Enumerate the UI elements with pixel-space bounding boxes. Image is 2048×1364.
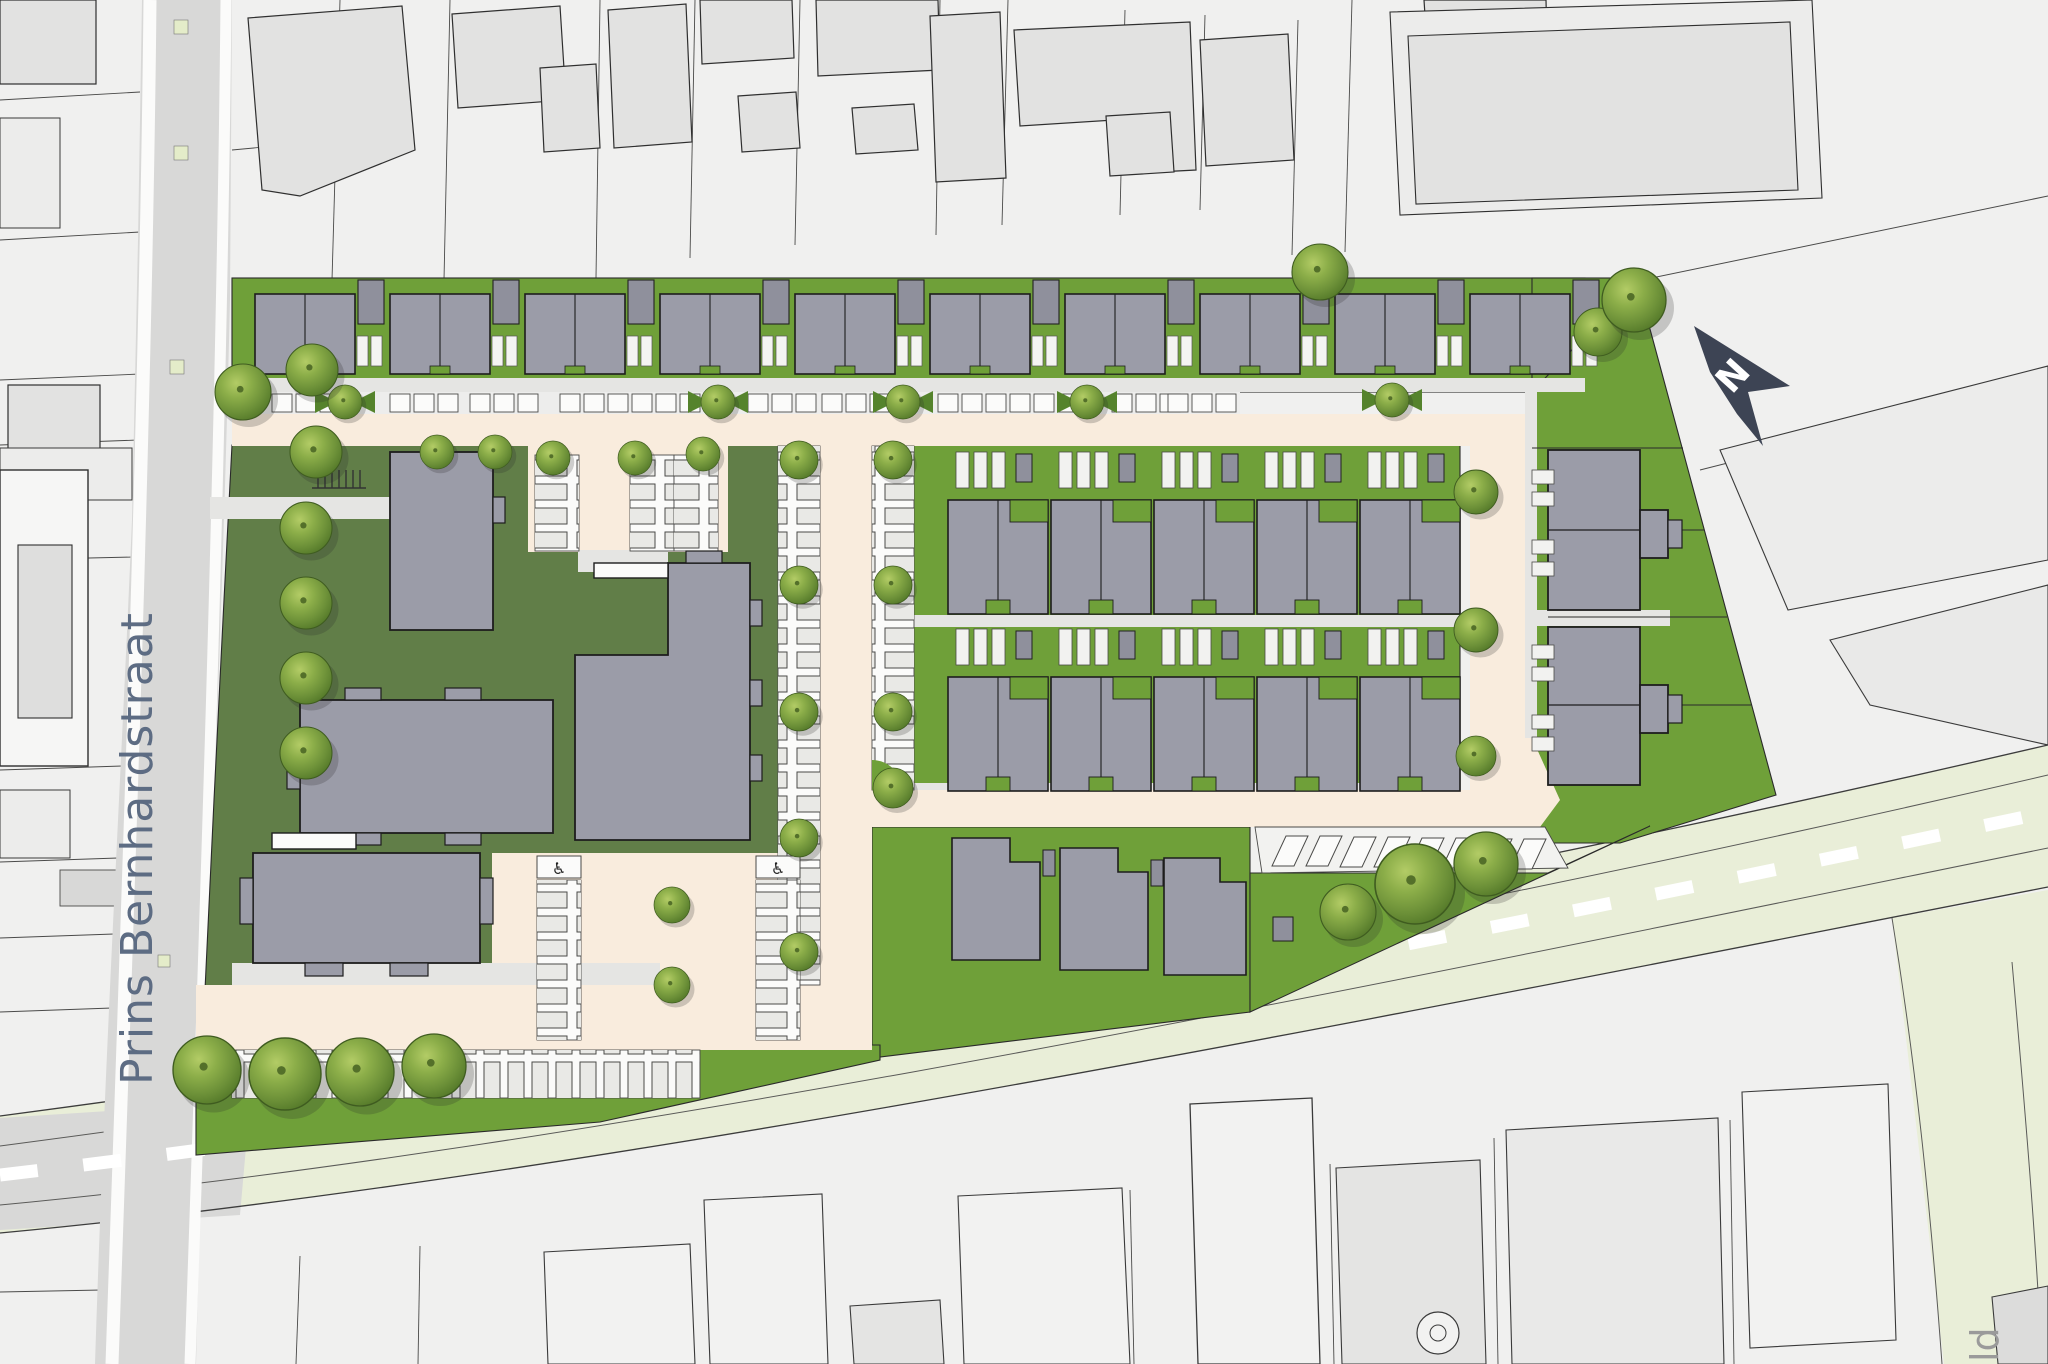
lower-east-street bbox=[872, 790, 1540, 827]
street-label: Prins Bernhardstraat bbox=[112, 612, 163, 1085]
apartment-block bbox=[300, 700, 553, 833]
canopy bbox=[594, 563, 668, 578]
middle-street bbox=[820, 446, 872, 1050]
apartment-block bbox=[253, 853, 480, 963]
masterplan-map: ♿ ♿ bbox=[0, 0, 2048, 1364]
wheelchair-icon: ♿ bbox=[552, 859, 566, 878]
canopy bbox=[272, 833, 356, 849]
wheelchair-icon: ♿ bbox=[771, 859, 785, 878]
roundabout-symbol-icon bbox=[1417, 1312, 1459, 1354]
east-street bbox=[1470, 414, 1532, 738]
site-plan-page: ♿ ♿ bbox=[0, 0, 2048, 1364]
edge-street-label-partial: ld bbox=[1963, 1327, 2007, 1362]
apartment-block bbox=[390, 452, 493, 630]
